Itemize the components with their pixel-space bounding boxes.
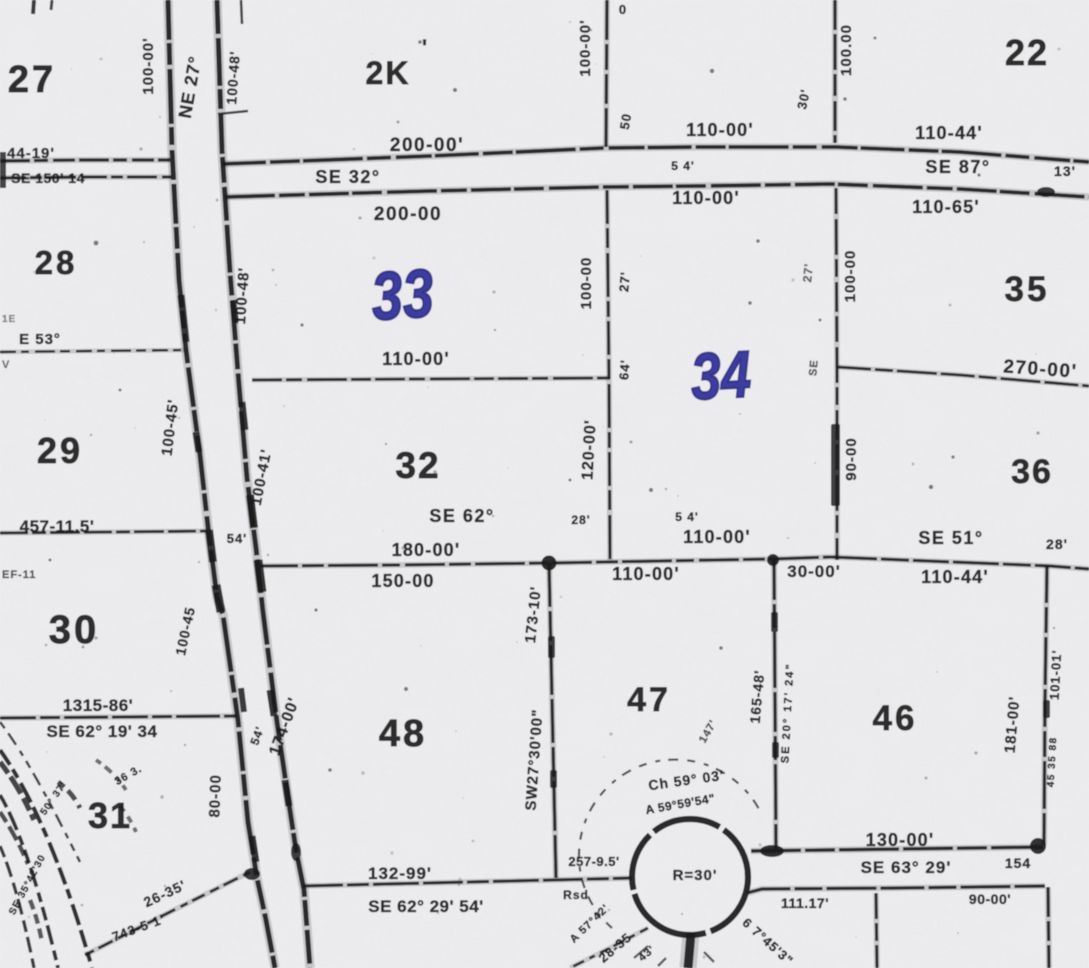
svg-text:32: 32 [395,445,440,486]
svg-text:47: 47 [627,681,671,719]
svg-text:100.00: 100.00 [838,24,855,76]
svg-text:48: 48 [379,713,427,755]
svg-text:110-00': 110-00' [672,188,740,208]
svg-text:R=30': R=30' [673,867,718,884]
svg-text:457-11.5': 457-11.5' [20,517,95,536]
svg-text:V: V [2,359,10,371]
svg-text:30-00': 30-00' [787,562,841,581]
svg-text:110-00': 110-00' [686,120,754,140]
svg-text:44-19': 44-19' [7,145,55,162]
svg-text:100-00: 100-00 [842,250,859,303]
svg-text:5 4': 5 4' [671,159,695,173]
svg-text:64': 64' [616,359,633,381]
svg-text:154: 154 [1005,855,1031,871]
svg-text:SE 87°: SE 87° [925,157,990,177]
svg-text:27: 27 [8,59,56,101]
svg-text:SE 62°: SE 62° [429,506,494,526]
svg-text:111.17': 111.17' [781,895,829,911]
svg-text:110-44': 110-44' [921,567,989,587]
svg-text:Rsd: Rsd [563,888,589,902]
svg-text:1315-86': 1315-86' [63,696,133,715]
svg-text:28: 28 [35,244,78,281]
svg-text:30: 30 [49,608,100,652]
svg-text:28': 28' [1046,536,1068,552]
svg-text:5 4': 5 4' [675,510,699,524]
svg-text:SE 32°: SE 32° [315,167,380,187]
svg-text:SE: SE [807,359,820,377]
svg-text:36: 36 [1011,453,1053,491]
svg-text:2K: 2K [366,55,411,91]
svg-text:130-00': 130-00' [866,830,935,850]
svg-text:54': 54' [227,531,248,546]
svg-text:120-00': 120-00' [579,419,599,480]
svg-text:SE 51°: SE 51° [918,528,983,548]
svg-text:180-00': 180-00' [392,540,461,560]
svg-text:0: 0 [619,2,627,17]
svg-text:28': 28' [571,513,590,527]
svg-text:200-00': 200-00' [390,135,464,156]
svg-text:90-00': 90-00' [969,891,1011,907]
svg-text:22: 22 [1005,32,1049,73]
svg-text:35: 35 [1005,270,1050,309]
svg-text:110-65': 110-65' [912,197,980,217]
svg-text:150-00: 150-00 [371,571,434,591]
svg-text:50: 50 [617,112,635,131]
svg-text:90-00: 90-00 [843,437,860,480]
svg-text:SE 62° 19' 34: SE 62° 19' 34 [47,722,158,741]
svg-text:257-9.5': 257-9.5' [568,854,619,869]
svg-text:34: 34 [689,336,753,413]
svg-text:110-00': 110-00' [612,564,680,584]
svg-text:29: 29 [37,430,83,471]
svg-text:46: 46 [873,699,918,738]
svg-text:80-00: 80-00 [206,774,225,818]
svg-text:100-00': 100-00' [140,37,157,94]
svg-text:132-99': 132-99' [368,864,432,883]
svg-text:110-00': 110-00' [382,349,450,369]
svg-text:200-00: 200-00 [374,204,442,225]
svg-text:110-00': 110-00' [683,527,751,547]
svg-text:SE 62° 29' 54': SE 62° 29' 54' [368,897,483,916]
svg-text:E 53°: E 53° [19,331,61,348]
svg-text:SE 150' 14: SE 150' 14 [11,170,85,186]
svg-text:27': 27' [616,271,633,293]
svg-text:100-00': 100-00' [577,19,594,76]
svg-text:': ' [422,35,428,60]
svg-text:31: 31 [88,795,132,836]
svg-text:13': 13' [1054,163,1076,179]
svg-text:1E: 1E [2,314,16,325]
svg-text:SE 63° 29': SE 63° 29' [861,858,952,877]
svg-text:EF-11: EF-11 [2,569,36,581]
svg-text:27': 27' [800,262,816,282]
svg-text:110-44': 110-44' [915,123,983,143]
svg-text:33: 33 [369,256,436,336]
svg-text:101-01': 101-01' [1047,649,1065,700]
svg-text:100-00: 100-00 [578,257,595,310]
